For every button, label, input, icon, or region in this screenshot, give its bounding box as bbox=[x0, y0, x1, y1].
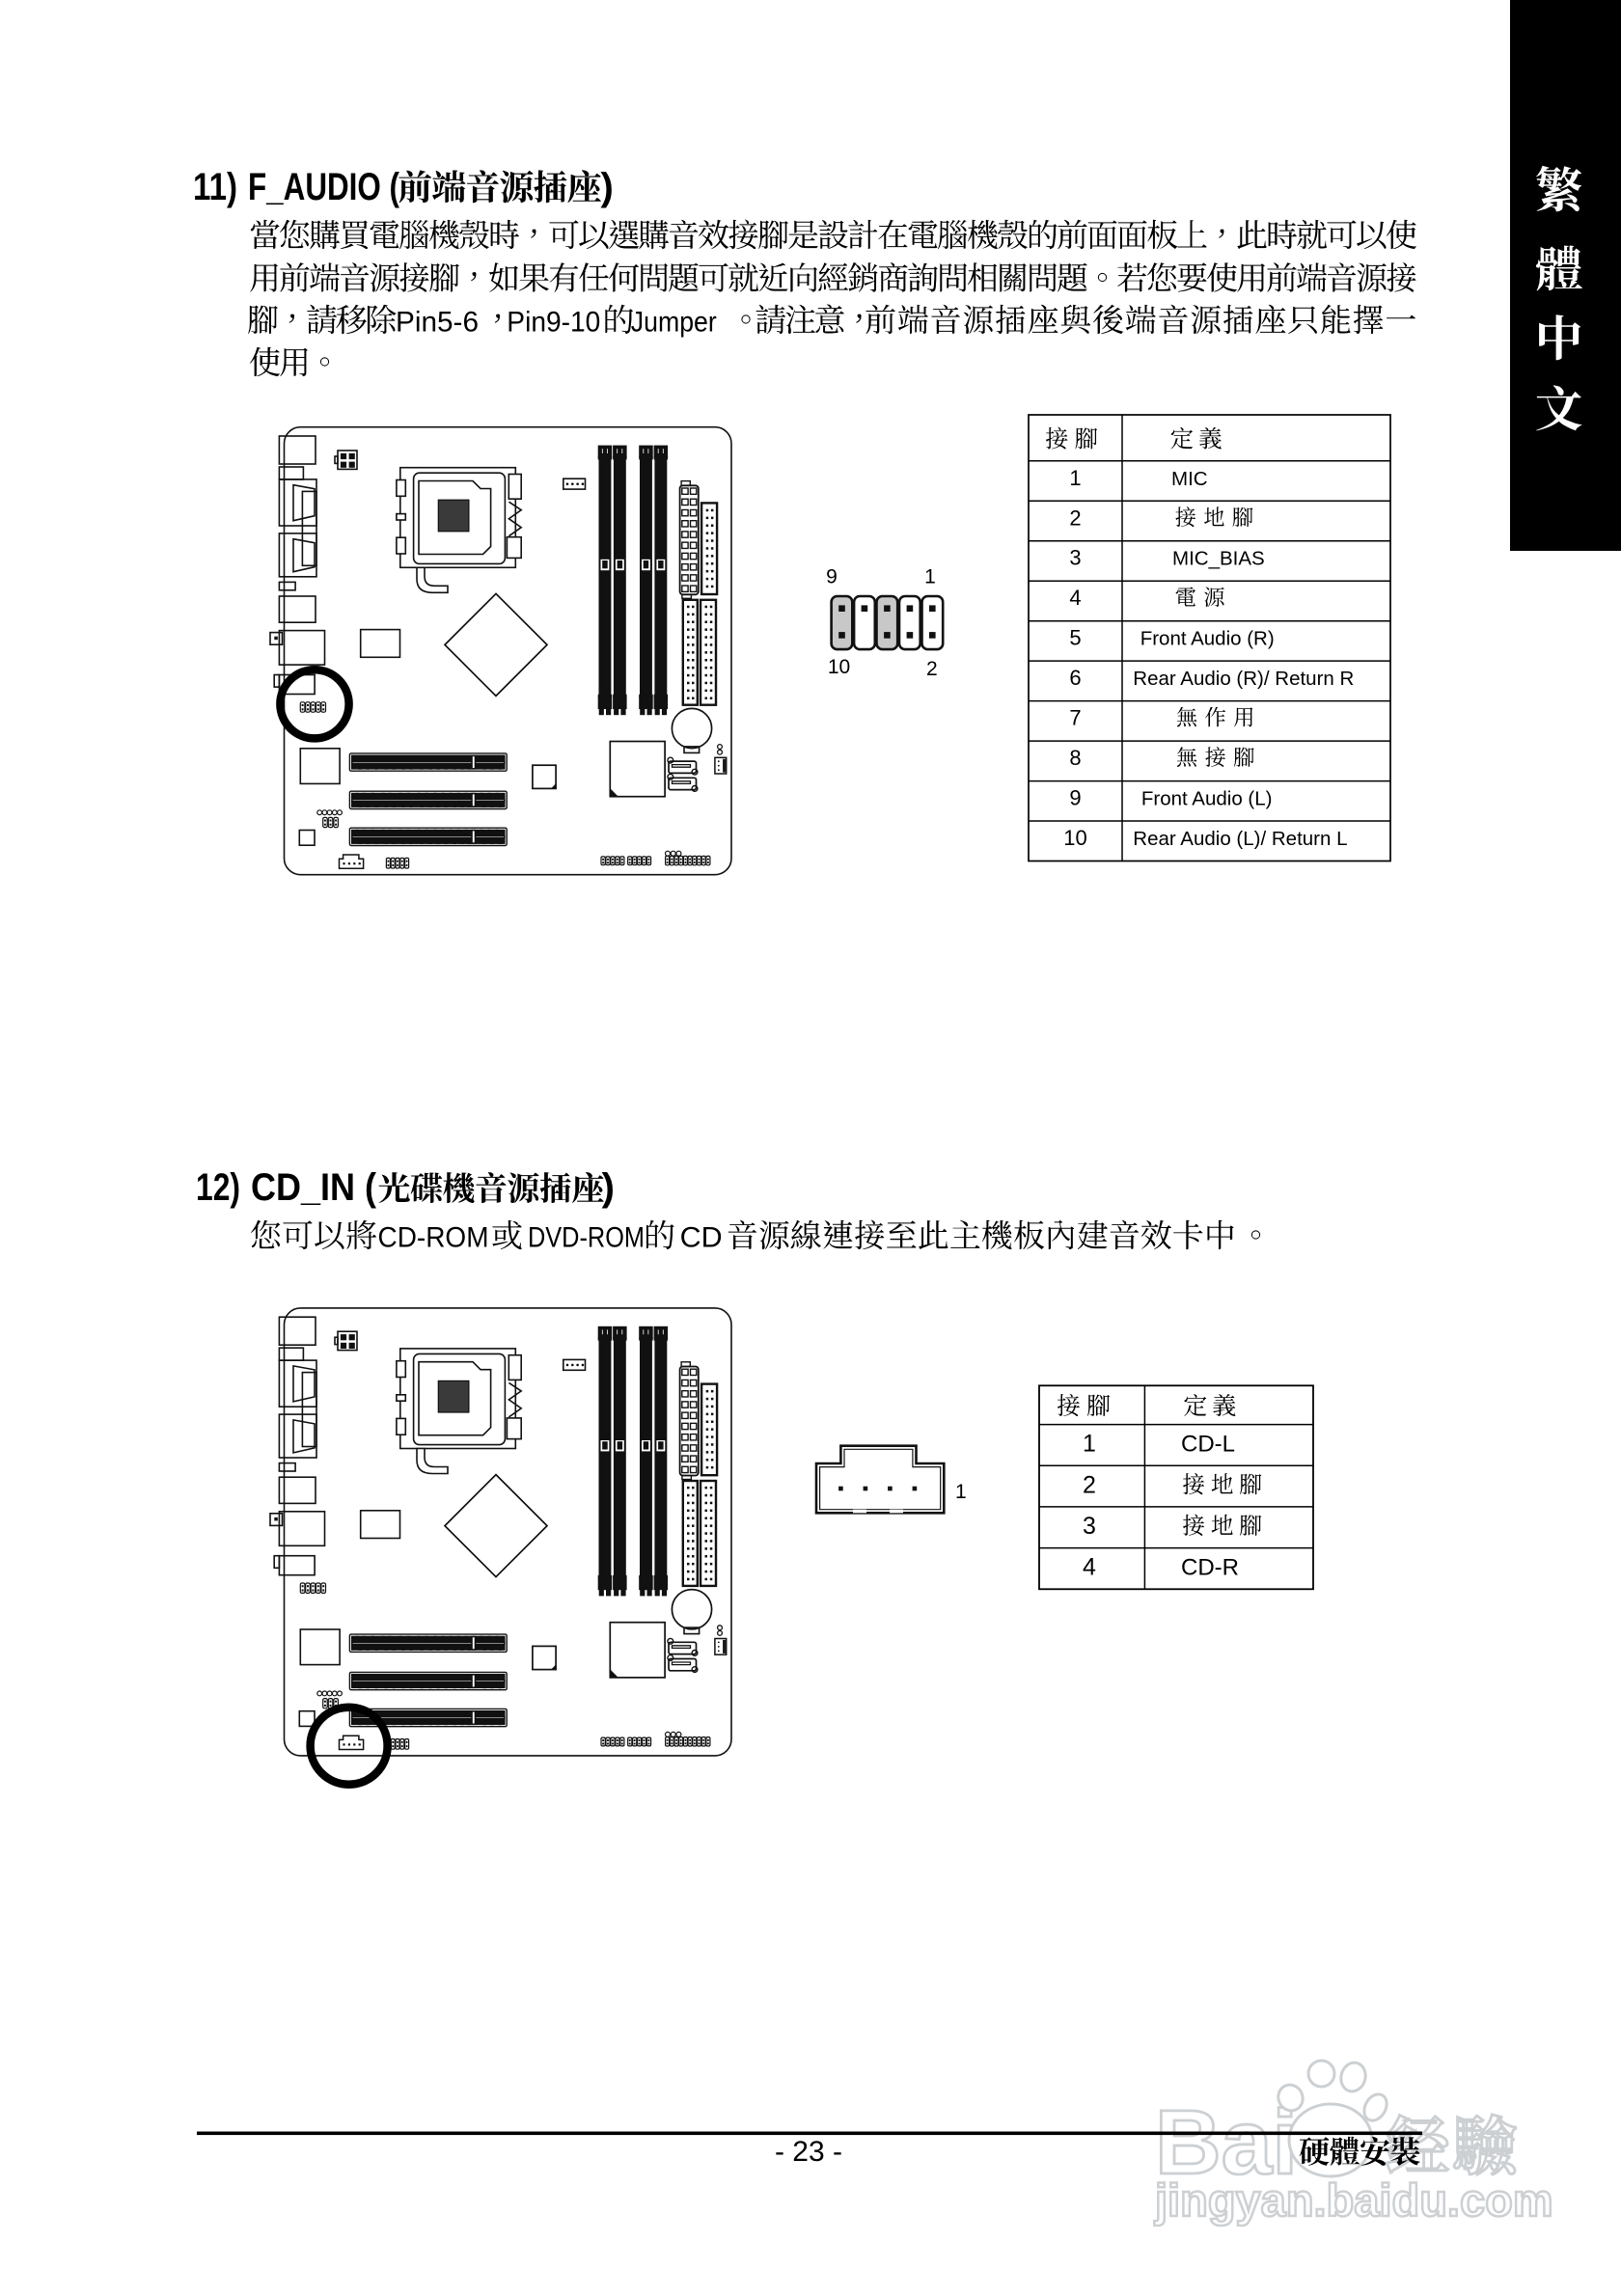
svg-text:6: 6 bbox=[1069, 666, 1081, 690]
svg-text:Front Audio (R): Front Audio (R) bbox=[1140, 628, 1275, 650]
svg-text:12): 12) bbox=[196, 1166, 240, 1209]
svg-text:3: 3 bbox=[1083, 1513, 1096, 1540]
svg-text:F_AUDIO (: F_AUDIO ( bbox=[248, 166, 400, 208]
svg-text:11): 11) bbox=[193, 166, 237, 208]
svg-text:9: 9 bbox=[826, 566, 838, 588]
svg-text:1: 1 bbox=[1069, 466, 1081, 490]
svg-text:): ) bbox=[602, 1166, 615, 1209]
svg-text:Rear Audio (L)/ Return L: Rear Audio (L)/ Return L bbox=[1133, 828, 1347, 850]
svg-text:10: 10 bbox=[828, 656, 850, 678]
svg-text:1: 1 bbox=[955, 1481, 967, 1503]
svg-text:MIC: MIC bbox=[1171, 468, 1208, 490]
svg-text:4: 4 bbox=[1083, 1554, 1096, 1581]
svg-text:10: 10 bbox=[1063, 826, 1086, 850]
svg-text:CD: CD bbox=[680, 1222, 723, 1254]
svg-text:DVD-ROM: DVD-ROM bbox=[528, 1222, 645, 1254]
svg-text:2: 2 bbox=[1083, 1471, 1096, 1498]
svg-text:4: 4 bbox=[1069, 586, 1081, 610]
svg-text:Front Audio (L): Front Audio (L) bbox=[1141, 788, 1273, 810]
svg-text:MIC_BIAS: MIC_BIAS bbox=[1172, 548, 1265, 570]
svg-text:1: 1 bbox=[924, 566, 936, 588]
svg-text:- 23 -: - 23 - bbox=[775, 2136, 842, 2168]
svg-text:CD-R: CD-R bbox=[1181, 1555, 1239, 1581]
svg-text:Pin5-6: Pin5-6 bbox=[396, 307, 479, 339]
svg-text:CD-ROM: CD-ROM bbox=[378, 1222, 489, 1254]
svg-text:Pin9-10: Pin9-10 bbox=[507, 307, 600, 339]
svg-text:1: 1 bbox=[1083, 1431, 1096, 1458]
svg-text:Jumper: Jumper bbox=[631, 307, 717, 339]
svg-text:CD-L: CD-L bbox=[1181, 1432, 1235, 1458]
svg-text:Rear Audio (R)/ Return R: Rear Audio (R)/ Return R bbox=[1133, 668, 1354, 690]
svg-text:5: 5 bbox=[1069, 626, 1081, 650]
svg-text:8: 8 bbox=[1069, 746, 1081, 770]
svg-text:): ) bbox=[601, 166, 614, 208]
svg-text:2: 2 bbox=[926, 658, 938, 680]
svg-text:2: 2 bbox=[1069, 506, 1081, 530]
svg-text:9: 9 bbox=[1069, 786, 1081, 810]
svg-text:jingyan.baidu.com: jingyan.baidu.com bbox=[1154, 2174, 1553, 2226]
svg-text:3: 3 bbox=[1069, 546, 1081, 570]
svg-text:CD_IN (: CD_IN ( bbox=[251, 1166, 377, 1209]
svg-text:7: 7 bbox=[1069, 706, 1081, 730]
